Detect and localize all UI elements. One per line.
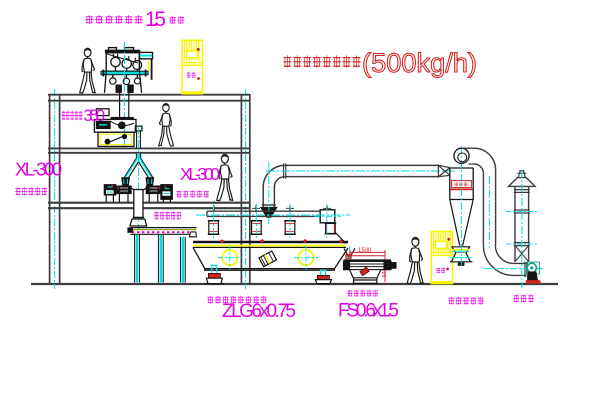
svg-text:FS0.6x1.5: FS0.6x1.5 — [338, 301, 399, 322]
svg-text:(500kg/h): (500kg/h) — [362, 48, 477, 78]
svg-text:XL-300: XL-300 — [180, 164, 220, 184]
svg-text:XL-300: XL-300 — [15, 159, 62, 180]
svg-text:1.5: 1.5 — [145, 8, 166, 31]
svg-text:ZLG6x0.75: ZLG6x0.75 — [222, 301, 296, 322]
svg-text:1500: 1500 — [358, 248, 372, 254]
svg-text:350: 350 — [84, 107, 106, 125]
